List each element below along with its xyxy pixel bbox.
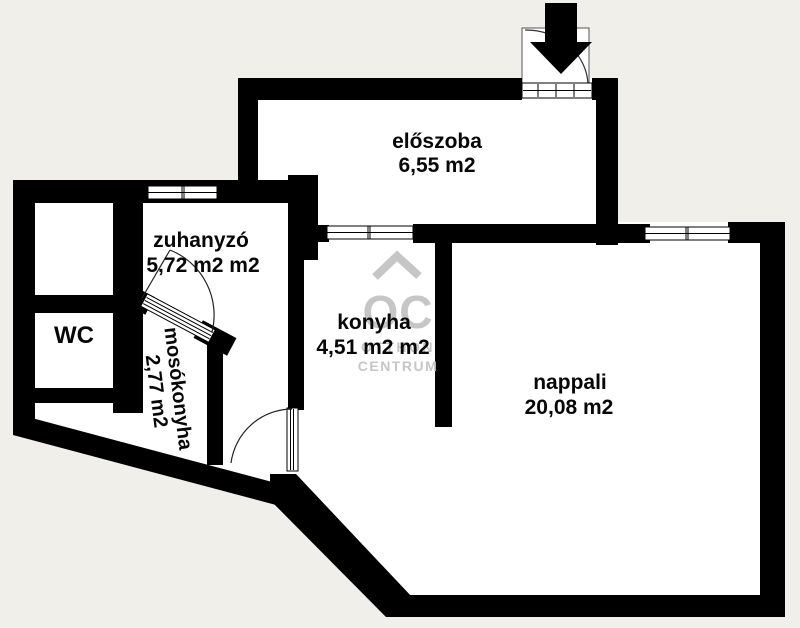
window-zuhanyzo: [148, 186, 217, 199]
room-label-zuhanyzo: zuhanyzó: [153, 229, 249, 252]
wall-bottom: [388, 595, 785, 617]
window-nappali: [645, 227, 730, 240]
room-label-wc: WC: [54, 322, 94, 349]
room-area-konyha: 4,51 m2 m2: [316, 336, 429, 359]
room-area-zuhanyzo: 5,72 m2 m2: [146, 254, 259, 277]
floor-plan-svg: OC OTTHON CENTRUM előszoba 6,55 m2 zuhan…: [0, 0, 800, 628]
wall-right-outer: [760, 222, 785, 617]
room-label-konyha: konyha: [337, 311, 411, 334]
entrance-door-sill: [522, 83, 592, 98]
wall-closet-wc-divider: [28, 295, 113, 313]
wall-konyha-left: [288, 255, 304, 410]
wall-eloszoba-top: [238, 78, 522, 100]
watermark-line2: CENTRUM: [358, 358, 439, 374]
room-area-eloszoba: 6,55 m2: [398, 154, 475, 177]
door-sill-passage: [287, 408, 298, 471]
wall-eloszoba-right: [596, 78, 618, 245]
room-label-eloszoba: előszoba: [392, 130, 482, 153]
floor-plan-page: OC OTTHON CENTRUM előszoba 6,55 m2 zuhan…: [0, 0, 800, 628]
room-area-nappali: 20,08 m2: [525, 396, 614, 419]
wall-wc-bottom: [35, 388, 113, 403]
wall-konyha-nappali-divider: [435, 224, 452, 427]
room-label-nappali: nappali: [533, 371, 607, 394]
window-konyha-eloszoba: [327, 226, 413, 239]
wall-mosokonyha-right: [207, 333, 223, 465]
wall-zuhanyzo-right: [288, 175, 318, 260]
